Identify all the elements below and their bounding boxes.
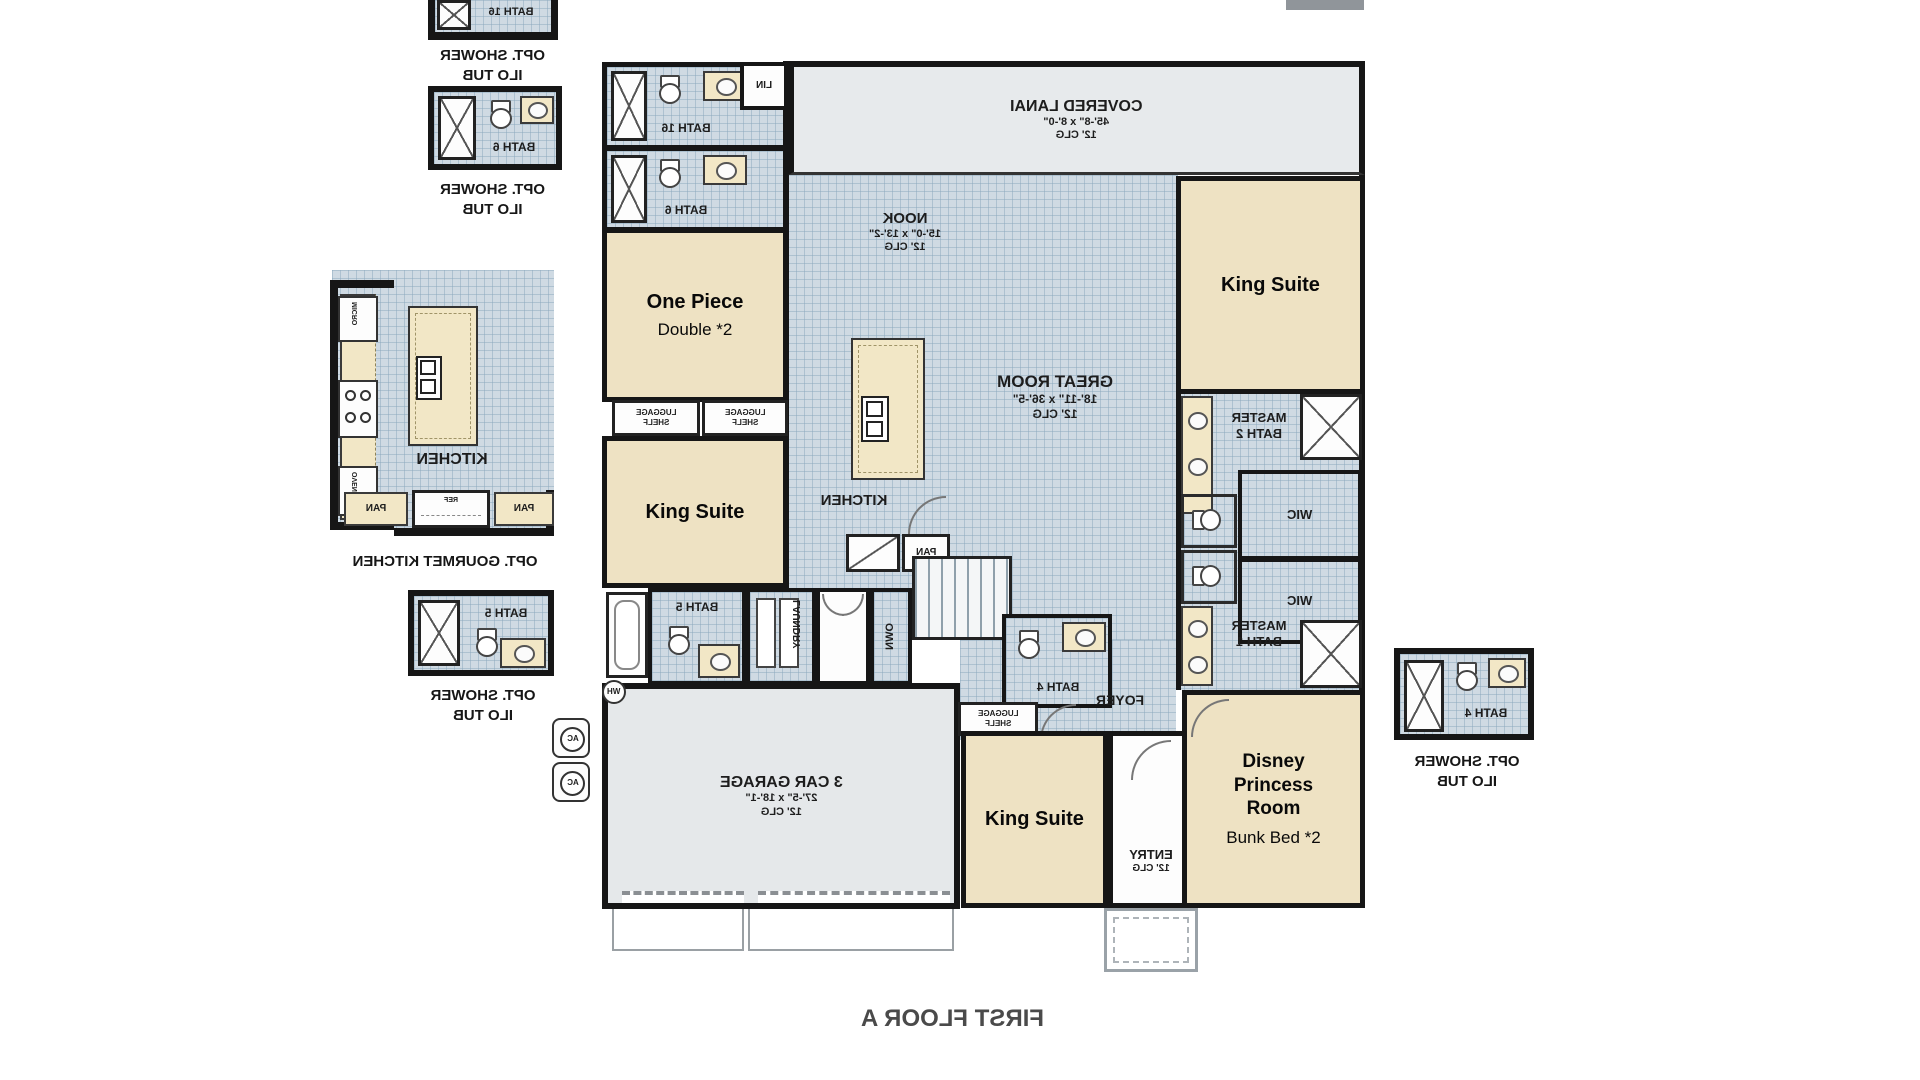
staircase [912, 556, 1012, 640]
linen-closet: LIN [740, 62, 788, 110]
shower-icon [437, 0, 471, 30]
garage-door [622, 891, 744, 903]
wall [428, 32, 558, 40]
shower-icon [418, 600, 460, 666]
garage: 3 CAR GARAGE 27'-5" x 18'-1" 12' CLG [602, 683, 960, 909]
sink-icon [716, 162, 737, 180]
sink-icon [528, 102, 548, 119]
plan-title: FIRST FLOOR A [845, 1005, 1060, 1034]
sink-icon [710, 653, 731, 671]
floor-plan-canvas: BATH 16 OPT. SHOWER ILO TUB BATH 6 OPT. … [0, 0, 1920, 1080]
great-room-label: GREAT ROOM 18'-11" x 36'-5" 12' CLG [975, 372, 1135, 421]
door-arc-icon [822, 594, 844, 616]
inset-bath16-caption: OPT. SHOWER ILO TUB [415, 46, 570, 85]
door-arc-icon [842, 594, 864, 616]
microwave-cabinet: MICRO [338, 296, 378, 342]
kitchen-island [851, 338, 925, 480]
bath6-label: BATH 6 [641, 203, 731, 217]
cooktop-icon [416, 356, 442, 400]
ac-label: AC [563, 734, 583, 744]
sink-icon [1075, 629, 1096, 647]
garage-label: 3 CAR GARAGE 27'-5" x 18'-1" 12' CLG [720, 773, 843, 819]
washer-icon [756, 598, 776, 668]
cooktop-icon [861, 396, 889, 442]
bath6-room: BATH 6 [602, 146, 788, 232]
inset-kitchen: MICRO OVEN KITCHEN PAN REF PAN [322, 260, 564, 560]
shower-icon [1300, 620, 1362, 688]
burner-icon [360, 412, 371, 423]
master-bath-column: MASTER BATH 2 WIC WIC MASTER BATH 1 [1176, 392, 1365, 690]
wall [394, 528, 554, 536]
toilet-icon [1018, 630, 1036, 656]
sink-icon [1498, 665, 1519, 683]
foyer-label: FOYER [1076, 692, 1164, 709]
luggage-shelf: LUGGAGESHELF [702, 400, 788, 436]
toilet-icon [476, 628, 494, 654]
vanity-counter [1062, 622, 1106, 652]
king-suite-right: King Suite [1176, 176, 1365, 394]
luggage-label: LUGGAGESHELF [725, 408, 765, 427]
bath16-label: BATH 16 [641, 121, 731, 135]
king-suite-left: King Suite [602, 436, 788, 588]
tub-inner [614, 600, 640, 670]
burner-icon [360, 390, 371, 401]
sink-icon [514, 645, 535, 663]
inset-bath4: BATH 4 [1394, 648, 1534, 740]
ac-unit: AC [552, 718, 590, 758]
sink-icon [716, 78, 737, 96]
wh-label: WH [607, 687, 620, 697]
master-bath2-label: MASTER BATH 2 [1214, 410, 1304, 441]
wic-label: WIC [1287, 507, 1312, 523]
lanai-label: COVERED LANAI 45'-8" x 8'-0" 12' CLG [1010, 97, 1142, 143]
shower-icon [1300, 394, 1362, 460]
bath5-room: BATH 5 [648, 588, 746, 685]
inset-bath5: BATH 5 [408, 590, 554, 676]
toilet-icon [1192, 569, 1218, 587]
burner-icon [420, 379, 436, 394]
wic-room: WIC [1238, 470, 1362, 560]
inset-kitchen-label: KITCHEN [397, 450, 507, 469]
burner-icon [420, 360, 436, 375]
room-title: King Suite [985, 807, 1084, 832]
kitchen-label: KITCHEN [798, 492, 910, 510]
sink-icon [1188, 656, 1208, 674]
vanity-counter [703, 155, 747, 185]
oven-label: OVEN [352, 472, 360, 492]
fridge-icon: REF [412, 490, 490, 528]
room-title: Disney Princess Room [1234, 750, 1313, 821]
nook-label: NOOK 15'-0" x 13'-2" 12' CLG [830, 210, 980, 254]
storage-closet [816, 588, 870, 685]
luggage-label: LUGGAGESHELF [636, 408, 676, 427]
one-piece-room: One Piece Double *2 [602, 228, 788, 402]
room-subtitle: Bunk Bed *2 [1226, 827, 1321, 848]
porch-step [1113, 917, 1189, 963]
inset-bath5-label: BATH 5 [466, 606, 546, 620]
own-label: OWN [884, 623, 897, 650]
toilet-icon [659, 159, 677, 185]
driveway-apron [748, 909, 954, 951]
room-title: One Piece [647, 290, 744, 315]
driveway-apron [612, 909, 744, 951]
micro-label: MICRO [352, 302, 360, 325]
kitchen-island [408, 306, 478, 446]
water-closet [1181, 550, 1237, 604]
laundry-room: LAUNDRY [746, 588, 816, 685]
top-right-bar [1286, 0, 1364, 10]
pantry-cabinet: PAN [344, 492, 408, 526]
door-arc-icon [1191, 699, 1229, 737]
inset-bath5-caption: OPT. SHOWER ILO TUB [408, 686, 558, 725]
luggage-label: LUGGAGESHELF [978, 709, 1018, 728]
burner-icon [866, 401, 883, 417]
pan-label: PAN [352, 503, 400, 515]
range-icon [338, 380, 378, 438]
sink-icon [1188, 412, 1208, 430]
pantry-cabinet: PAN [494, 492, 554, 526]
toilet-icon [1192, 513, 1218, 531]
toilet-icon [490, 100, 508, 126]
king-suite-bottom: King Suite [961, 731, 1108, 908]
burner-icon [866, 421, 883, 437]
inset-bath4-label: BATH 4 [1446, 706, 1526, 720]
master-bath1-label: MASTER BATH 1 [1214, 618, 1304, 649]
inset-bath6-label: BATH 6 [474, 140, 554, 154]
wall [330, 288, 338, 528]
inset-bath16-label: BATH 16 [474, 6, 548, 19]
kitchen-counter [846, 534, 900, 572]
burner-icon [345, 390, 356, 401]
inset-bath16: BATH 16 [428, 0, 558, 40]
toilet-icon [1456, 662, 1474, 688]
vanity-counter [1181, 606, 1213, 686]
garage-door [758, 891, 950, 903]
room-title: King Suite [1221, 273, 1320, 298]
laundry-label: LAUNDRY [792, 600, 804, 649]
vanity-counter [698, 644, 740, 678]
toilet-icon [659, 75, 677, 101]
wall [330, 280, 394, 288]
bath5-label: BATH 5 [660, 600, 734, 614]
water-closet [1181, 494, 1237, 548]
inset-bath4-caption: OPT. SHOWER ILO TUB [1392, 752, 1542, 791]
princess-room: Disney Princess Room Bunk Bed *2 [1182, 690, 1365, 908]
tub-icon [606, 592, 648, 678]
inset-kitchen-caption: OPT. GOURMET KITCHEN [320, 552, 570, 572]
covered-lanai: COVERED LANAI 45'-8" x 8'-0" 12' CLG [788, 61, 1365, 175]
sink-icon [1188, 620, 1208, 638]
burner-icon [345, 412, 356, 423]
room-title: King Suite [646, 500, 745, 525]
toilet-icon [668, 626, 686, 652]
shower-icon [438, 96, 476, 160]
ac-label: AC [563, 778, 583, 788]
luggage-shelf: LUGGAGESHELF [612, 400, 700, 436]
front-porch [1104, 908, 1198, 972]
vanity-counter [1488, 658, 1526, 688]
lin-label: LIN [756, 80, 772, 92]
shower-icon [1404, 660, 1444, 732]
room-subtitle: Double *2 [658, 319, 733, 340]
door-arc-icon [1131, 740, 1171, 780]
vanity-counter [520, 96, 554, 124]
ac-unit: AC [552, 762, 590, 802]
ref-label: REF [421, 497, 481, 516]
vanity-counter [500, 638, 546, 668]
entry-label: ENTRY 12' CLG [1119, 847, 1183, 875]
inset-bath6: BATH 6 [428, 86, 562, 170]
pan-label: PAN [502, 503, 546, 515]
water-heater-icon: WH [602, 680, 626, 704]
sink-icon [1188, 458, 1208, 476]
wic-label: WIC [1287, 593, 1312, 609]
inset-bath6-caption: OPT. SHOWER ILO TUB [415, 180, 570, 219]
owners-closet: OWN [870, 588, 912, 685]
